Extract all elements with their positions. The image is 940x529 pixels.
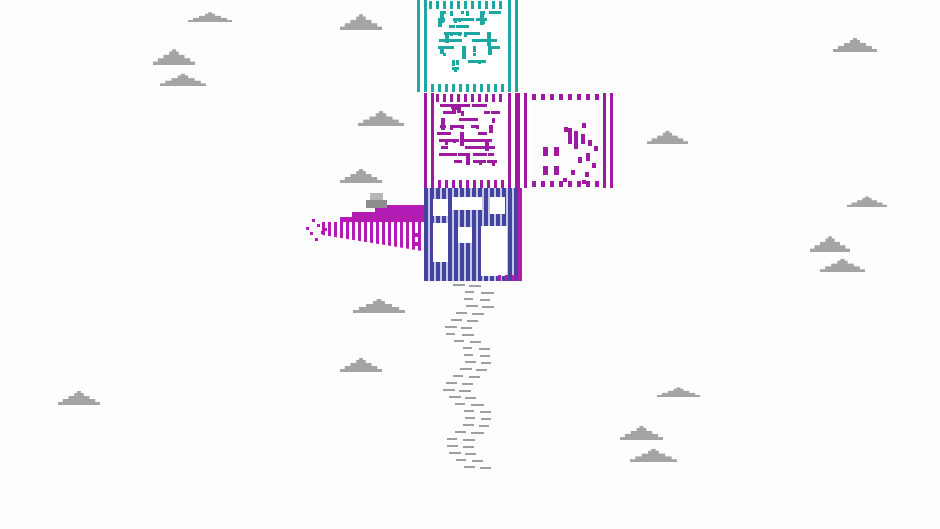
dither-mark bbox=[454, 160, 462, 163]
dither-mark bbox=[440, 11, 444, 23]
tower-structure bbox=[0, 0, 940, 529]
magenta-box-top-comb bbox=[436, 94, 506, 102]
dither-mark bbox=[491, 111, 500, 114]
dither-mark bbox=[487, 160, 490, 163]
dither-mark bbox=[454, 67, 457, 72]
dither-mark bbox=[456, 60, 459, 65]
dither-mark bbox=[478, 60, 481, 64]
dither-mark bbox=[471, 125, 479, 128]
outline-box-mark bbox=[564, 127, 568, 132]
dither-mark bbox=[464, 32, 467, 37]
outline-box-mark bbox=[588, 140, 592, 146]
outline-box-mark bbox=[554, 147, 559, 156]
dither-mark bbox=[488, 153, 494, 156]
dither-mark bbox=[437, 132, 448, 135]
dither-mark bbox=[451, 104, 454, 109]
dither-mark bbox=[469, 32, 480, 35]
outline-box-mark bbox=[571, 170, 575, 175]
blue-box-left-dash bbox=[415, 233, 421, 237]
outline-box-mark bbox=[543, 166, 548, 175]
dither-mark bbox=[462, 153, 468, 156]
dither-mark bbox=[449, 25, 455, 28]
dither-mark bbox=[489, 11, 501, 14]
dither-mark bbox=[444, 111, 447, 114]
outline-box-mark bbox=[586, 153, 590, 161]
dither-mark bbox=[440, 104, 447, 107]
dither-mark bbox=[485, 39, 497, 42]
dither-mark bbox=[450, 11, 453, 16]
outline-box-mark bbox=[585, 172, 589, 177]
dither-mark bbox=[465, 146, 472, 149]
dither-mark bbox=[489, 139, 492, 142]
dither-mark bbox=[462, 46, 466, 59]
dither-mark bbox=[466, 11, 469, 16]
dither-mark bbox=[485, 139, 489, 151]
dither-mark bbox=[440, 46, 444, 54]
outline-box-mark bbox=[594, 146, 598, 151]
magenta-box-right-stripes bbox=[508, 93, 518, 188]
outline-box-top-dots bbox=[532, 94, 602, 100]
dither-mark bbox=[441, 118, 445, 130]
outline-box-mark bbox=[568, 128, 572, 144]
dither-mark bbox=[463, 139, 475, 142]
game-viewport[interactable] bbox=[0, 0, 940, 529]
magenta-box-left-stripes bbox=[424, 93, 434, 188]
dither-mark bbox=[484, 111, 490, 114]
dither-mark bbox=[466, 25, 469, 28]
dither-mark bbox=[492, 118, 495, 123]
teal-box-top-comb bbox=[429, 1, 506, 9]
teal-box-right-stripes bbox=[508, 0, 518, 92]
teal-box-left-stripes bbox=[417, 0, 427, 92]
dither-mark bbox=[444, 39, 455, 42]
window bbox=[433, 223, 448, 262]
dither-mark bbox=[473, 46, 476, 52]
dither-mark bbox=[481, 18, 487, 21]
dither-mark bbox=[489, 125, 493, 133]
dither-mark bbox=[460, 132, 464, 146]
dither-mark bbox=[441, 146, 448, 149]
dither-mark bbox=[461, 111, 464, 116]
dither-mark bbox=[478, 132, 487, 135]
dither-mark bbox=[476, 104, 487, 107]
dither-mark bbox=[463, 118, 471, 121]
outline-box-mark bbox=[563, 178, 567, 182]
window bbox=[481, 226, 507, 276]
window bbox=[458, 227, 472, 243]
blue-box-bottom-comb bbox=[498, 275, 522, 281]
dither-mark bbox=[468, 60, 477, 63]
dither-mark bbox=[461, 11, 464, 14]
outline-box-right-stripes bbox=[603, 93, 617, 188]
outline-box-mark bbox=[554, 166, 559, 175]
outline-box-mark bbox=[543, 147, 548, 156]
dither-mark bbox=[447, 46, 454, 49]
dither-mark bbox=[453, 125, 464, 128]
outline-box-mark bbox=[582, 180, 586, 184]
magenta-box-bottom-comb bbox=[424, 180, 518, 188]
outline-box-mark bbox=[574, 131, 578, 149]
window bbox=[452, 197, 482, 210]
outline-box-mark bbox=[581, 134, 585, 144]
dither-mark bbox=[439, 153, 451, 156]
dither-mark bbox=[480, 153, 486, 156]
dither-mark bbox=[479, 160, 482, 165]
dither-mark bbox=[452, 60, 455, 66]
outline-box-mark bbox=[592, 163, 596, 168]
window bbox=[433, 199, 448, 216]
dither-mark bbox=[473, 53, 476, 56]
outline-box-mark bbox=[578, 157, 582, 163]
outline-box-left-stripes bbox=[517, 93, 531, 188]
dither-mark bbox=[489, 46, 500, 49]
dither-mark bbox=[472, 39, 482, 42]
dither-mark bbox=[462, 18, 473, 21]
dither-mark bbox=[444, 32, 451, 35]
outline-box-mark bbox=[582, 123, 586, 128]
blue-box-right-edge bbox=[518, 183, 522, 281]
dither-mark bbox=[453, 139, 456, 143]
dither-mark bbox=[454, 18, 457, 23]
outline-box-bottom-dots bbox=[532, 181, 602, 187]
window bbox=[490, 197, 505, 214]
teal-box-bottom-comb bbox=[417, 84, 518, 92]
blue-box-left-dash bbox=[415, 242, 421, 246]
dither-mark bbox=[440, 125, 446, 128]
